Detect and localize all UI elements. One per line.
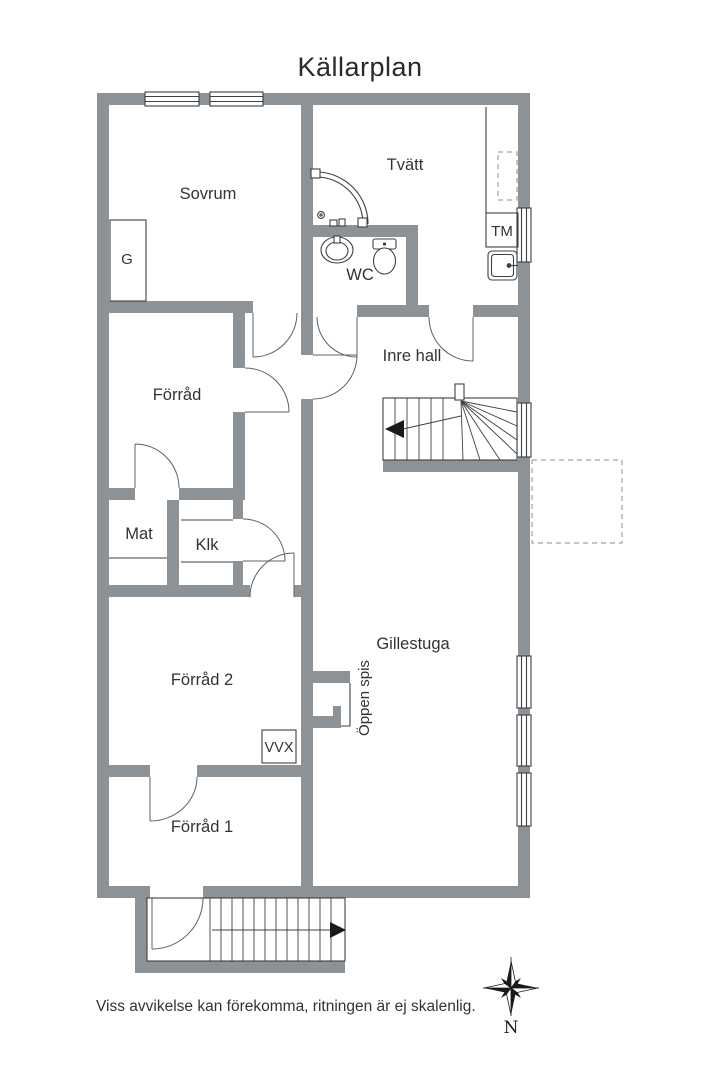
room-label-gillestuga: Gillestuga: [376, 635, 450, 653]
shower-icon: [311, 169, 368, 227]
window-icon: [210, 92, 263, 106]
room-label-forrad: Förråd: [153, 386, 202, 404]
door-sovrum: [253, 313, 297, 357]
floorplan-svg: Källarplan: [0, 0, 720, 1080]
fixture-label-vvx: VVX: [264, 740, 293, 756]
room-label-forrad1: Förråd 1: [171, 818, 233, 836]
door-forrad1: [150, 777, 197, 821]
door-exterior: [152, 898, 203, 949]
compass-rose-icon: N: [483, 957, 539, 1038]
floorplan-page: Källarplan: [0, 0, 720, 1080]
fireplace-icon: [341, 683, 350, 726]
door-forrad: [245, 368, 289, 412]
room-label-forrad2: Förråd 2: [171, 671, 233, 689]
disclaimer-text: Viss avvikelse kan förekomma, ritningen …: [96, 998, 476, 1015]
fixture-label-garderob: G: [121, 251, 133, 268]
door-wc: [317, 317, 357, 357]
room-label-tvatt: Tvätt: [387, 156, 424, 174]
room-label-klk: Klk: [196, 536, 220, 554]
room-label-wc: WC: [346, 266, 374, 284]
toilet-icon: [373, 239, 396, 274]
sink-icon: [321, 236, 353, 263]
exterior-dashed-outline: [532, 460, 622, 543]
stairs-up-arrow-icon: [330, 922, 346, 938]
fixture-label-oppen-spis: Öppen spis: [355, 660, 373, 736]
door-forrad2: [250, 553, 294, 597]
room-label-sovrum: Sovrum: [180, 185, 237, 203]
stairs-interior: [383, 384, 517, 460]
window-icon: [145, 92, 199, 106]
laundry-sink-icon: [488, 251, 518, 280]
window-icon: [517, 773, 531, 826]
fixture-label-tm: TM: [491, 223, 513, 240]
door-klk: [243, 519, 285, 561]
window-icon: [517, 656, 531, 708]
room-label-mat: Mat: [125, 525, 153, 543]
page-title: Källarplan: [297, 52, 422, 82]
window-icon: [517, 715, 531, 766]
door-inre-hall: [313, 355, 357, 399]
window-icon: [517, 403, 531, 457]
compass-north-label: N: [504, 1018, 519, 1038]
room-label-inre-hall: Inre hall: [383, 347, 442, 365]
stairs-exterior: [147, 898, 346, 961]
door-mat: [135, 444, 179, 488]
walls: [97, 93, 530, 973]
appliance-dashed-icon: [498, 152, 517, 200]
window-icon: [517, 208, 531, 262]
